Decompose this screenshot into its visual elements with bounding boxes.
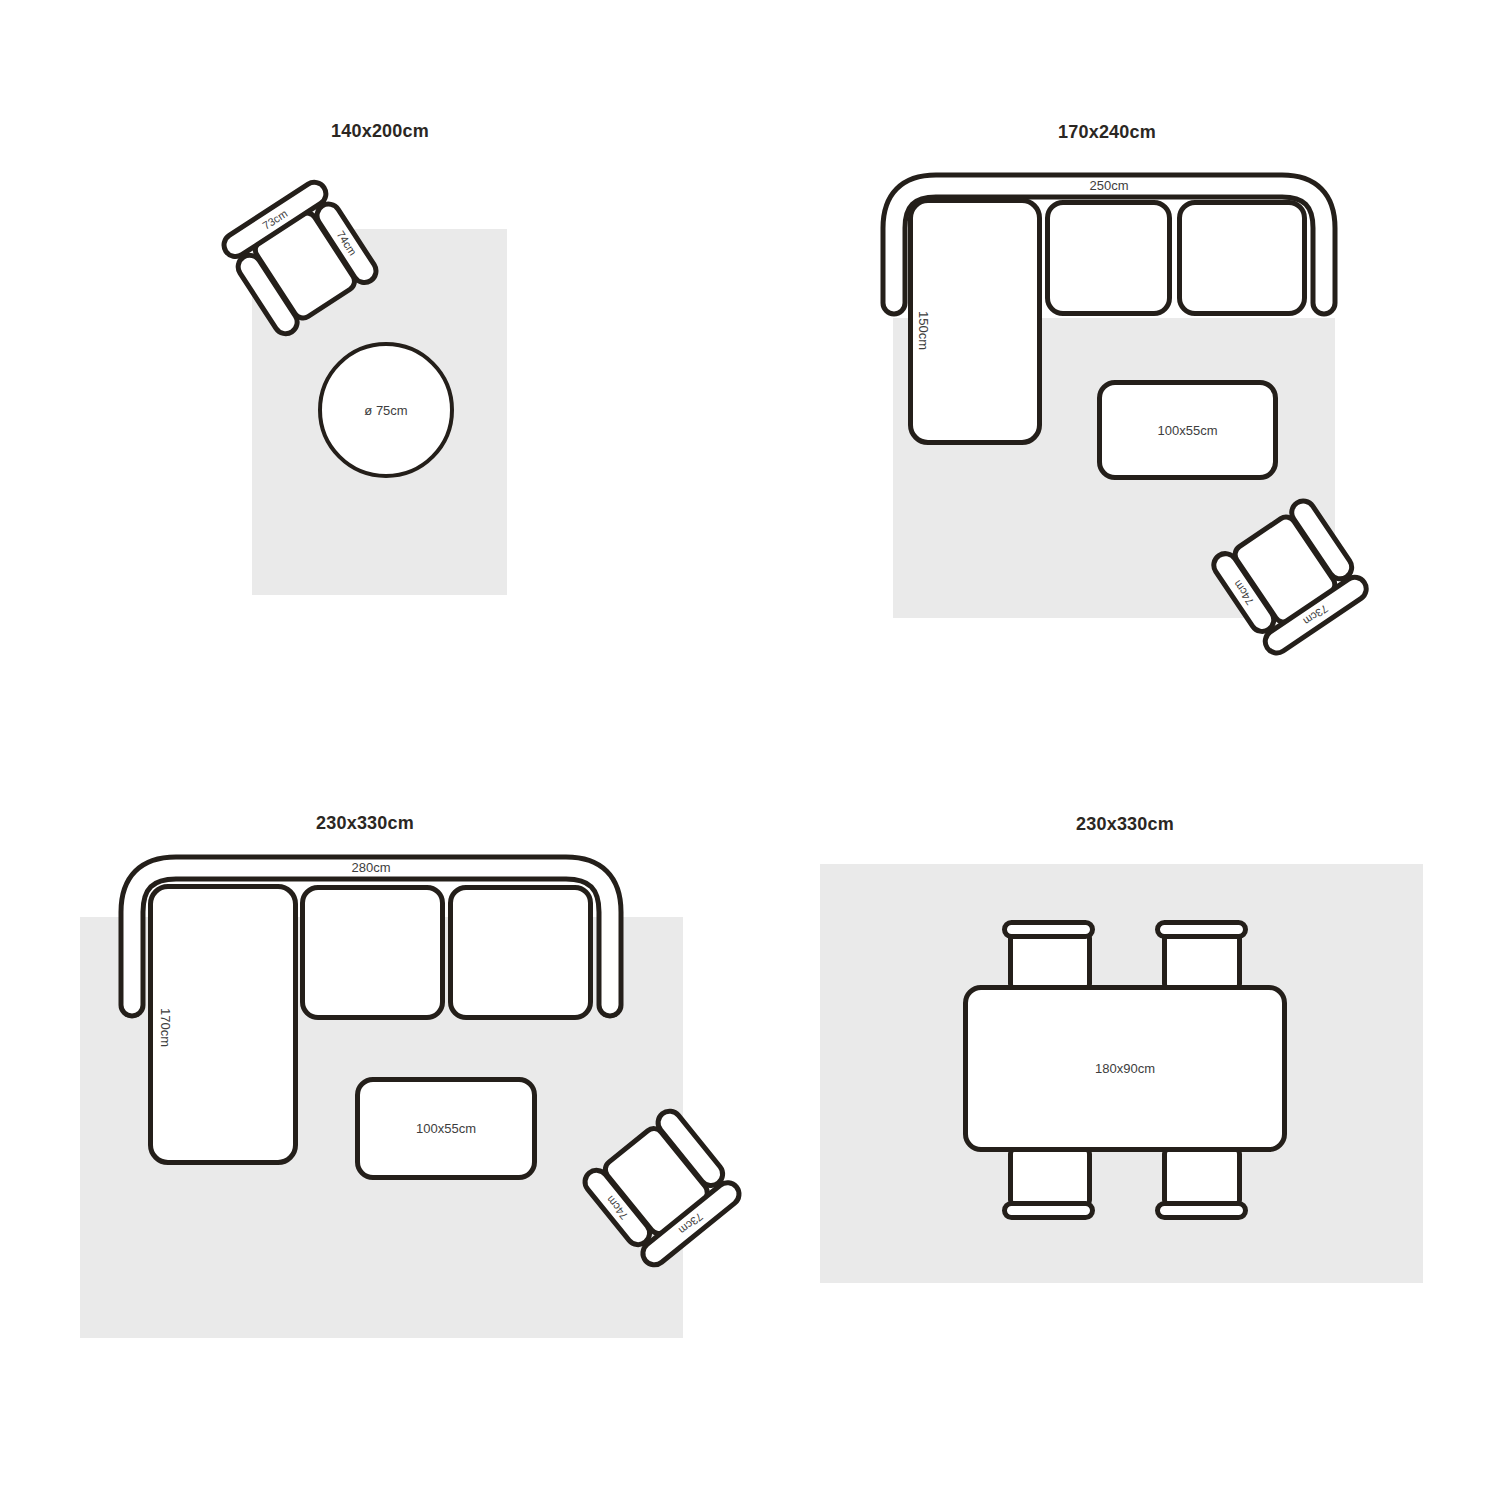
armchair-arm-dimension-label: 74cm <box>604 1193 630 1221</box>
armchair-back-dimension-label: 73cm <box>260 207 289 232</box>
sofa-seat-cushion <box>448 885 593 1020</box>
dining-table: 180x90cm <box>963 985 1287 1152</box>
coffee-table: 100x55cm <box>355 1077 537 1180</box>
scene-140x200-title: 140x200cm <box>270 121 490 142</box>
dining-chair-seat <box>1162 930 1242 992</box>
scene-170x240-title: 170x240cm <box>997 122 1217 143</box>
armchair-back-dimension-label: 73cm <box>1301 603 1330 628</box>
dining-chair-seat <box>1008 930 1092 992</box>
round-side-table: ø 75cm <box>318 342 454 478</box>
sofa-depth-dimension-label: 170cm <box>158 998 173 1058</box>
dining-chair-backrest <box>1155 1201 1248 1220</box>
round-table-dimension-label: ø 75cm <box>364 403 407 418</box>
armchair-arm-dimension-label: 74cm <box>334 229 359 258</box>
armchair-arm-dimension-label: 74cm <box>1231 578 1256 607</box>
sofa-depth-dimension-label: 150cm <box>916 301 931 361</box>
coffee-table-dimension-label: 100x55cm <box>1158 423 1218 438</box>
dining-chair-seat <box>1008 1146 1092 1208</box>
dining-chair-seat <box>1162 1146 1242 1208</box>
sofa-seat-cushion <box>300 885 445 1020</box>
armchair-back-dimension-label: 73cm <box>677 1211 705 1237</box>
scene-230x330-living-title: 230x330cm <box>255 813 475 834</box>
sofa-width-dimension-label: 250cm <box>894 177 1324 194</box>
coffee-table: 100x55cm <box>1097 380 1278 480</box>
dining-chair-backrest <box>1155 920 1248 939</box>
sofa-width-dimension-label: 280cm <box>132 859 610 876</box>
dining-table-dimension-label: 180x90cm <box>1095 1061 1155 1076</box>
dining-chair-backrest <box>1002 1201 1095 1220</box>
sofa-seat-cushion <box>1177 200 1307 316</box>
sofa-seat-cushion <box>1045 200 1172 316</box>
dining-chair-backrest <box>1002 920 1095 939</box>
coffee-table-dimension-label: 100x55cm <box>416 1121 476 1136</box>
scene-230x330-dining-title: 230x330cm <box>1015 814 1235 835</box>
rug-size-guide: 140x200cm 73cm 74cm ø 75cm 170x240cm 250… <box>0 0 1500 1500</box>
